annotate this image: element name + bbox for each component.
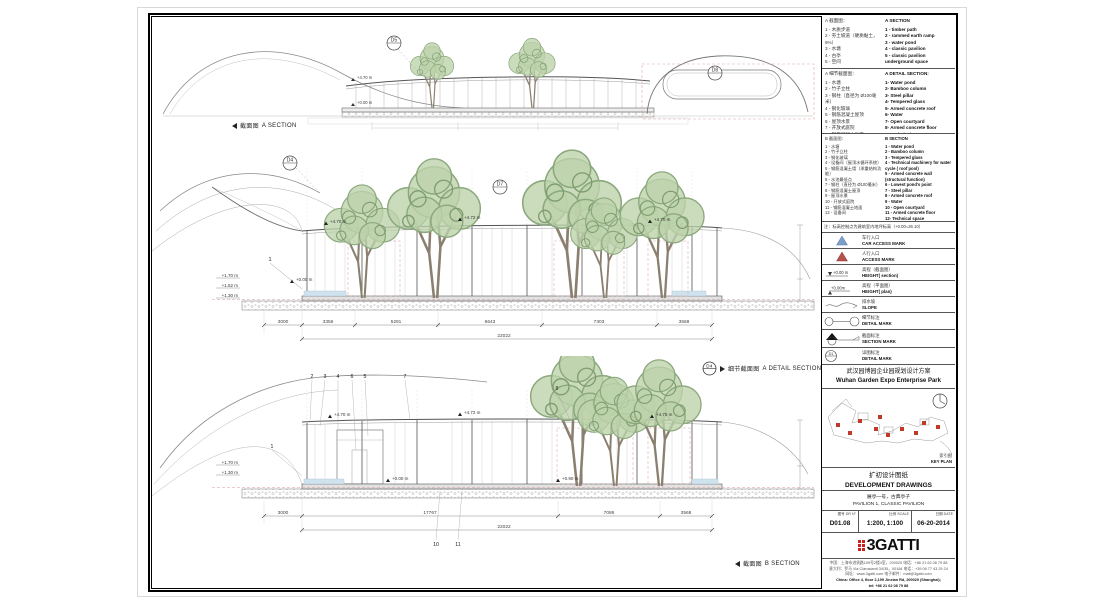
key-plan: 索引图 KEY PLAN [822,389,955,468]
dim-lines [372,122,618,130]
north-arrow-icon [933,394,947,408]
drawing-b-section: 2 3 4 6 5 7 9 1 +4.70 m +4.72 m +4. [152,356,822,586]
callout-left: 1 [271,444,302,476]
mark-detail-2: D1 详图标注DETAIL MARK [822,348,955,365]
legend-b-cn-list-item: 12 - 设备间 [825,210,882,216]
legend-ad-en-list: 1- Water pond2- Bamboo column3- Steel pi… [885,80,953,134]
caption-a-section: 截面图 A SECTION [232,121,297,130]
detail-ref-icon: D1 [822,349,862,363]
detail-bubble: D8 [708,66,722,80]
svg-text:D4: D4 [287,158,294,164]
svg-text:17767: 17767 [423,510,437,516]
svg-text:5291: 5291 [391,319,402,325]
svg-text:1: 1 [271,444,274,450]
company-address: 中国：上海市进贤路199号2楼4室，200020 电话：+86 21 62 08… [822,559,955,589]
caption-en: A DETAIL SECTION [763,366,822,372]
car-access-icon [822,235,862,246]
svg-text:5: 5 [364,374,367,380]
drawing-sheet: D5 D8 +4.70 m +0.00 m 截面图 A SECTION [0,0,1099,604]
caption-b-section: 截面图 B SECTION [735,559,800,568]
detail-bubble-icon: D4 [702,361,717,376]
address-line: 中国：上海市进贤路199号2楼4室，200020 电话：+86 21 62 08… [822,561,955,567]
logo-text: 3GATTI [867,537,920,555]
vertical-dim [797,420,803,489]
svg-text:+1.52 m: +1.52 m [222,283,239,288]
caption-cn: 细节截面图 [728,364,760,373]
key-plan-markers [836,415,940,437]
svg-text:+0.90 m: +0.90 m [562,476,579,481]
ramp-curves [152,174,338,251]
svg-text:3000: 3000 [278,510,289,516]
height-plan-icon: +0.00m [822,283,862,295]
logo-dots-icon [858,540,865,551]
legend-title-en: A DETAIL SECTION: [885,71,953,78]
sheet-name-en: PAVILION 1, CLASSIC PAVILION [822,501,955,508]
legend-b-section: B 截面图： 1 - 水塘2 - 竹子立柱3 - 钢化玻璃4 - 设备间（屋顶水… [822,134,955,222]
detail-bubble: D7 [493,180,507,194]
detail-bubble: D4 [283,156,320,193]
legend-a-en-list: 1 - timber path2 - rammed earth ramp3 - … [885,27,953,66]
slope-icon [822,299,862,311]
key-plan-label: 索引图 KEY PLAN [931,453,952,464]
svg-text:+4.70 m: +4.70 m [357,75,373,80]
technical-room [337,430,383,484]
project-title-en: Wuhan Garden Expo Enterprise Park [822,377,955,386]
legend-ad-cn-list-item: 3 - 钢柱（直径为 Ø100毫米） [825,93,882,106]
svg-text:22022: 22022 [497,333,511,339]
svg-text:D5: D5 [391,38,398,44]
svg-text:+4.70 m: +4.70 m [330,219,347,224]
ground-band [242,489,814,498]
svg-text:2: 2 [311,374,314,380]
drawing-phase: 扩初设计图纸 DEVELOPMENT DRAWINGS [822,468,955,491]
svg-text:+4.70 m: +4.70 m [656,412,673,417]
detail-bubble: D5 [387,36,420,74]
water-pond [692,479,718,484]
legend-b-en-list-item: 12- Technical space [885,216,953,222]
elevation-note: 注：标高控制点为建筑室内地坪标高（+0.00=26.10） [822,222,955,233]
section-arrow-icon [735,561,740,567]
svg-text:+4.70 m: +4.70 m [654,217,671,222]
project-title-cn: 武汉园博园企业园规划设计方案 [822,368,955,377]
project-title: 武汉园博园企业园规划设计方案 Wuhan Garden Expo Enterpr… [822,365,955,389]
callouts-bottom: 10 11 [433,491,462,548]
svg-text:D7: D7 [497,182,504,188]
section-arrow-icon [232,123,237,129]
svg-text:+0.00 m: +0.00 m [296,277,313,282]
svg-text:3568: 3568 [681,510,692,516]
legend-title-cn: A 细节截面图： [825,71,882,78]
svg-text:+4.72 m: +4.72 m [464,410,481,415]
svg-text:D1: D1 [829,352,834,356]
svg-text:3356: 3356 [323,319,334,325]
legend-b-cn-list-item: 5 - 钢筋混凝土墙（承重结构功能） [825,166,882,177]
caption-cn: 截面图 [240,121,259,130]
svg-text:7: 7 [404,374,407,380]
svg-text:+0.00 m: +0.00 m [392,476,409,481]
hill-curves [152,375,487,496]
drawing-number: 图号 DR N° D01.08 [822,511,859,532]
roof-slab [302,419,808,474]
glass-walls [315,420,702,484]
ground-band [242,301,814,310]
sheet-name: 展亭一号，古典亭子 PAVILION 1, CLASSIC PAVILION [822,491,955,511]
legend-title-en: B SECTION [885,136,953,142]
svg-text:1: 1 [268,257,271,263]
mark-detail: 细节标注DETAIL MARK [822,313,955,330]
caption-cn: 截面图 [743,559,762,568]
callouts-top: 2 3 4 6 5 7 9 [311,374,559,392]
svg-text:3568: 3568 [679,319,690,325]
phase-en: DEVELOPMENT DRAWINGS [822,481,955,491]
caption-a-detail-section: D4 细节截面图 A DETAIL SECTION [702,361,821,376]
roof-slab [212,187,810,279]
mound-underground-space [642,56,814,119]
drawing-a-detail-section: D4 D7 +4.70 m +4.72 m +4.70 m +1.70 m +1… [152,149,822,356]
svg-text:10: 10 [433,542,439,548]
water-pond [672,291,706,296]
svg-text:6643: 6643 [485,319,496,325]
svg-text:+4.70 m: +4.70 m [334,412,351,417]
svg-text:22022: 22022 [497,524,511,530]
legend-b-en-list-item: 4 - Technical machinery for water cycle … [885,160,953,171]
svg-text:7303: 7303 [594,319,605,325]
detail-mark-icon [822,315,862,328]
section-mark-icon [822,331,862,346]
access-icon [822,251,862,262]
svg-text:+1.70 m: +1.70 m [222,460,239,465]
caption-en: B SECTION [765,561,800,567]
svg-text:+1.70 m: +1.70 m [222,273,239,278]
legend-a-section: A 截面图： 1 - 木质步道2 - 夯土坡道（硬质黏土，5%）3 - 水塘4 … [822,16,955,69]
drawing-scale: 比例 SCALE 1:200, 1:100 [859,511,912,532]
sheet-frame: D5 D8 +4.70 m +0.00 m 截面图 A SECTION [148,13,958,592]
svg-text:7086: 7086 [604,510,615,516]
legend-a-detail-section: A 细节截面图： 1 - 水塘2 - 竹子立柱3 - 钢柱（直径为 Ø100毫米… [822,69,955,134]
address-line: China: Office 4, floor 2,199 Jinxian Rd,… [822,578,955,584]
number-scale-date: 图号 DR N° D01.08 比例 SCALE 1:200, 1:100 日期… [822,511,955,533]
water-pond [304,479,344,484]
mark-height-section: +0.00 m 高程（截面图）HEIGHT( section) [822,265,955,281]
svg-text:D4: D4 [706,364,713,369]
section-arrow-icon [720,366,725,372]
height-section-icon: +0.00 m [822,267,862,279]
title-block-panel: A 截面图： 1 - 木质步道2 - 夯土坡道（硬质黏土，5%）3 - 水塘4 … [821,16,955,589]
svg-text:9: 9 [556,386,559,392]
vertical-dim [797,225,803,301]
svg-text:3000: 3000 [278,319,289,325]
legend-title-cn: B 截面图： [825,136,882,142]
svg-text:+1.30 m: +1.30 m [222,470,239,475]
svg-text:+0.00 m: +0.00 m [357,100,373,105]
legend-title-cn: A 截面图： [825,18,882,25]
mark-access: 人行入口ACCESS MARK [822,249,955,265]
phase-cn: 扩初设计图纸 [822,471,955,481]
svg-text:+4.72 m: +4.72 m [464,215,481,220]
drawing-a-section: D5 D8 +4.70 m +0.00 m [158,26,823,150]
company-logo: 3GATTI [822,533,955,559]
legend-ad-cn-list: 1 - 水塘2 - 竹子立柱3 - 钢柱（直径为 Ø100毫米）4 - 钢化玻璃… [825,80,882,134]
legend-b-en-list: 1 - Water pond2 - Bamboo column3 - Tempe… [885,144,953,222]
legend-a-cn-list-item: 5 - 空间 [825,59,882,66]
address-line: tel: +86 21 62 08 79 88 [822,584,955,589]
mark-section: 截面标注SECTION MARK [822,330,955,348]
svg-text:3: 3 [324,374,327,380]
caption-en: A SECTION [262,123,297,129]
water-pond [304,291,346,296]
mark-slope: 排水坡SLOPE [822,297,955,313]
svg-text:+1.30 m: +1.30 m [222,293,239,298]
svg-text:+0.00m: +0.00m [831,285,846,290]
svg-text:11: 11 [455,542,460,548]
drawing-date: 日期 DATE 06-20-2014 [912,511,955,532]
legend-b-cn-list: 1 - 水塘2 - 竹子立柱3 - 钢化玻璃4 - 设备间（屋顶水循环系统）5 … [825,144,882,216]
legend-b-cn-list-item: 4 - 设备间（屋顶水循环系统） [825,160,882,166]
svg-text:+0.00 m: +0.00 m [833,270,849,275]
svg-text:4: 4 [337,374,340,380]
svg-text:6: 6 [351,374,354,380]
legend-title-en: A SECTION [885,18,953,25]
mark-car-access: 车行入口CAR ACCESS MARK [822,233,955,249]
callout: 1 [268,257,302,289]
legend-a-en-list-item: 5 - classic pavilion underground space [885,53,953,66]
legend-a-cn-list: 1 - 木质步道2 - 夯土坡道（硬质黏土，5%）3 - 水塘4 - 古亭5 -… [825,27,882,66]
legend-a-cn-list-item: 2 - 夯土坡道（硬质黏土，5%） [825,33,882,46]
sheet-name-cn: 展亭一号，古典亭子 [822,494,955,501]
mark-height-plan: +0.00m 高程（平面图）HEIGHT( plan) [822,281,955,297]
svg-text:D8: D8 [712,68,719,74]
legend-b-en-list-item: 5 - Armed concrete wall (structural func… [885,171,953,182]
